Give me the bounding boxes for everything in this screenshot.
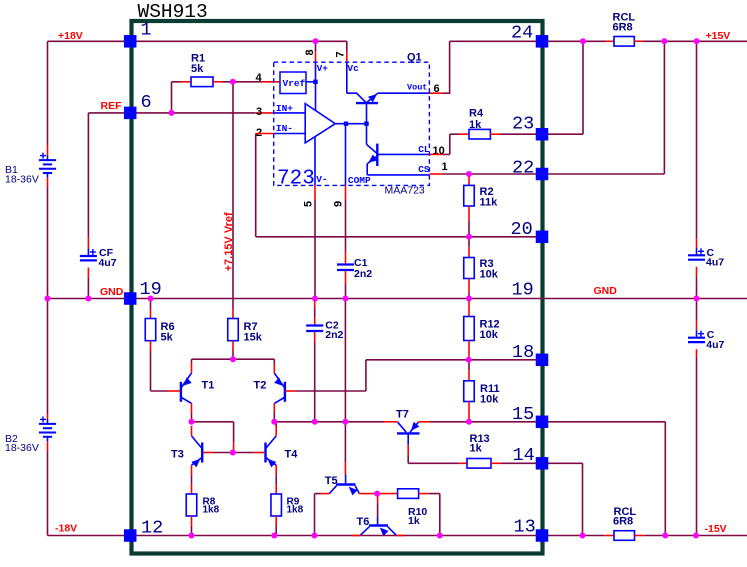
svg-text:10k: 10k xyxy=(480,329,499,341)
svg-text:Q1: Q1 xyxy=(407,52,422,64)
svg-text:4u7: 4u7 xyxy=(706,339,724,351)
svg-text:T3: T3 xyxy=(171,448,184,460)
svg-text:6: 6 xyxy=(141,92,152,113)
svg-text:8: 8 xyxy=(304,49,316,55)
svg-text:10k: 10k xyxy=(480,394,499,406)
svg-text:T5: T5 xyxy=(325,475,338,487)
svg-text:MAA723: MAA723 xyxy=(385,184,425,196)
svg-text:1: 1 xyxy=(442,161,448,173)
svg-text:V+: V+ xyxy=(317,63,329,74)
svg-text:Vref: Vref xyxy=(283,78,306,89)
svg-text:2n2: 2n2 xyxy=(325,329,343,341)
svg-text:19: 19 xyxy=(512,279,534,300)
svg-text:1k8: 1k8 xyxy=(203,505,220,516)
svg-text:+7.15V Vref: +7.15V Vref xyxy=(223,212,235,271)
svg-text:723: 723 xyxy=(277,168,315,191)
svg-text:1k: 1k xyxy=(408,515,420,527)
svg-text:1k8: 1k8 xyxy=(287,505,304,516)
svg-text:6R8: 6R8 xyxy=(613,22,633,34)
svg-text:6R8: 6R8 xyxy=(613,516,633,528)
svg-text:T1: T1 xyxy=(202,379,215,391)
svg-text:18-36V: 18-36V xyxy=(5,174,39,186)
svg-text:IN-: IN- xyxy=(276,123,293,134)
svg-text:14: 14 xyxy=(513,445,535,466)
svg-text:20: 20 xyxy=(511,219,533,240)
svg-text:+15V: +15V xyxy=(706,30,731,42)
svg-text:5k: 5k xyxy=(161,331,174,343)
svg-text:24: 24 xyxy=(511,23,533,44)
svg-text:4: 4 xyxy=(256,72,263,84)
svg-text:7: 7 xyxy=(335,51,347,57)
svg-text:15k: 15k xyxy=(244,331,263,343)
svg-text:-18V: -18V xyxy=(55,523,77,535)
svg-text:GND: GND xyxy=(100,286,124,298)
svg-text:REF: REF xyxy=(101,100,123,112)
svg-text:5k: 5k xyxy=(191,63,204,75)
svg-text:-15V: -15V xyxy=(705,523,727,535)
svg-text:9: 9 xyxy=(333,201,345,207)
svg-text:11k: 11k xyxy=(480,196,499,208)
svg-text:4u7: 4u7 xyxy=(706,256,724,268)
svg-text:1: 1 xyxy=(141,20,152,41)
svg-text:12: 12 xyxy=(141,518,163,539)
svg-text:+18V: +18V xyxy=(58,30,83,42)
svg-text:T4: T4 xyxy=(285,448,299,460)
svg-text:T7: T7 xyxy=(396,408,409,420)
svg-text:1k: 1k xyxy=(469,119,482,131)
svg-text:2n2: 2n2 xyxy=(354,268,372,280)
svg-text:18: 18 xyxy=(512,342,534,363)
svg-text:GND: GND xyxy=(594,285,618,297)
svg-text:22: 22 xyxy=(512,157,534,178)
svg-text:1k: 1k xyxy=(470,443,483,455)
svg-text:3: 3 xyxy=(256,106,262,118)
svg-text:10k: 10k xyxy=(480,269,499,281)
svg-text:CS: CS xyxy=(418,164,430,175)
svg-text:19: 19 xyxy=(140,279,162,300)
svg-text:V-: V- xyxy=(316,174,327,185)
svg-text:6: 6 xyxy=(434,83,440,95)
svg-text:COMP: COMP xyxy=(348,175,371,186)
svg-text:CL: CL xyxy=(418,144,430,155)
svg-text:15: 15 xyxy=(512,404,534,425)
svg-text:R4: R4 xyxy=(469,108,484,120)
svg-text:T2: T2 xyxy=(254,379,267,391)
svg-text:5: 5 xyxy=(303,201,315,207)
svg-text:4u7: 4u7 xyxy=(99,257,117,269)
svg-text:23: 23 xyxy=(512,113,534,134)
svg-text:13: 13 xyxy=(514,516,536,537)
svg-text:T6: T6 xyxy=(357,516,370,528)
svg-text:Vout: Vout xyxy=(407,83,427,93)
svg-text:18-36V: 18-36V xyxy=(5,442,39,454)
svg-text:Vc: Vc xyxy=(347,63,359,74)
